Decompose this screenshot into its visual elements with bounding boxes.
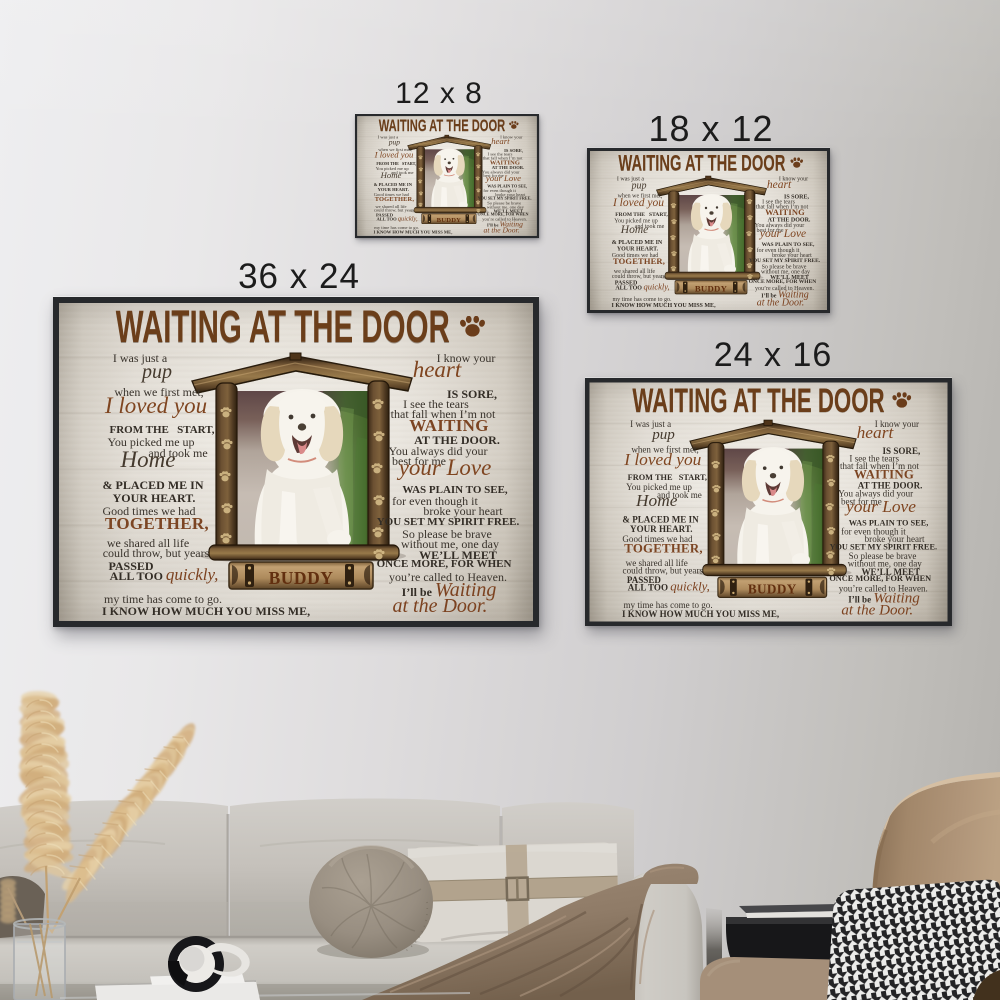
svg-text:BUDDY: BUDDY	[437, 217, 462, 224]
svg-text:BUDDY: BUDDY	[748, 582, 797, 597]
svg-text:BUDDY: BUDDY	[269, 568, 334, 588]
svg-text:BUDDY: BUDDY	[695, 284, 728, 294]
